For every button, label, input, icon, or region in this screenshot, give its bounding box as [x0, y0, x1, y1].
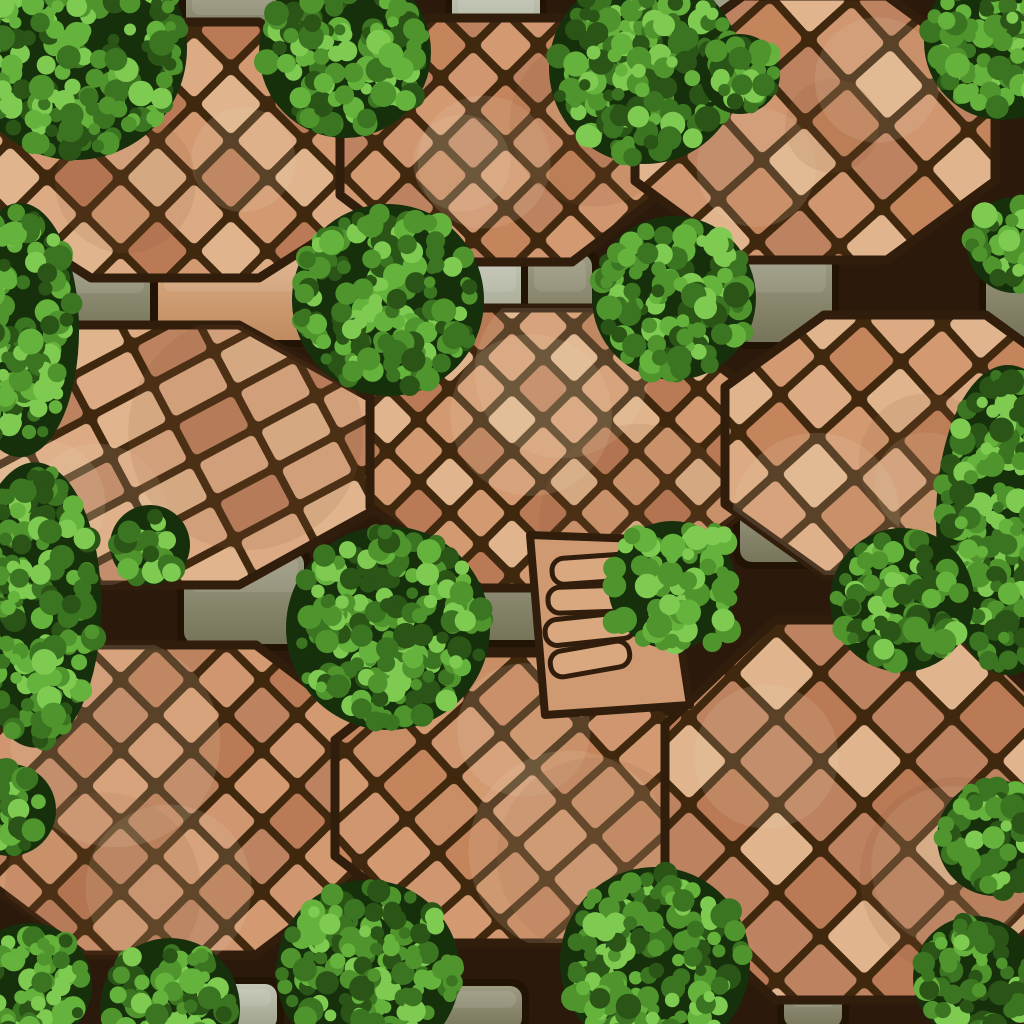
paving-texture: [0, 0, 1024, 1024]
shrub: [292, 204, 484, 396]
shrub: [700, 34, 780, 114]
paving-texture-image: [0, 0, 1024, 1024]
stone-highlight: [192, 0, 272, 15]
